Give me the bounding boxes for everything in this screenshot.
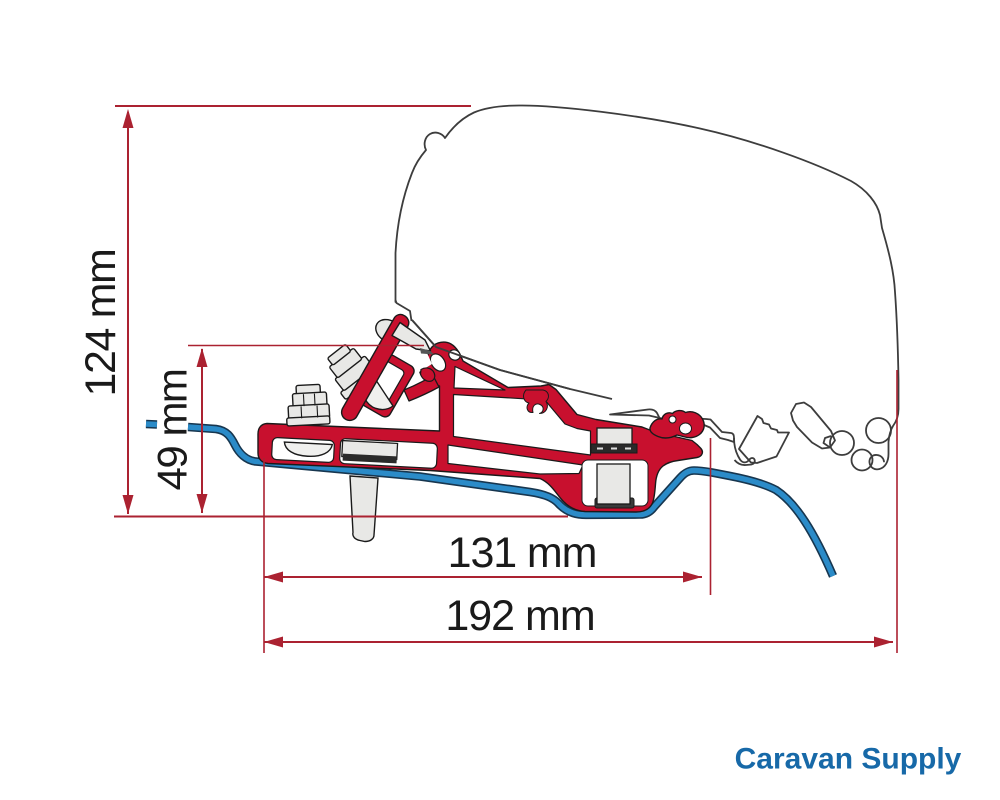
svg-text:192 mm: 192 mm [445,592,594,640]
svg-text:131 mm: 131 mm [448,529,597,577]
svg-text:124 mm: 124 mm [77,250,125,397]
svg-text:49 mm: 49 mm [149,370,196,491]
svg-text:Caravan Supply: Caravan Supply [735,743,962,776]
